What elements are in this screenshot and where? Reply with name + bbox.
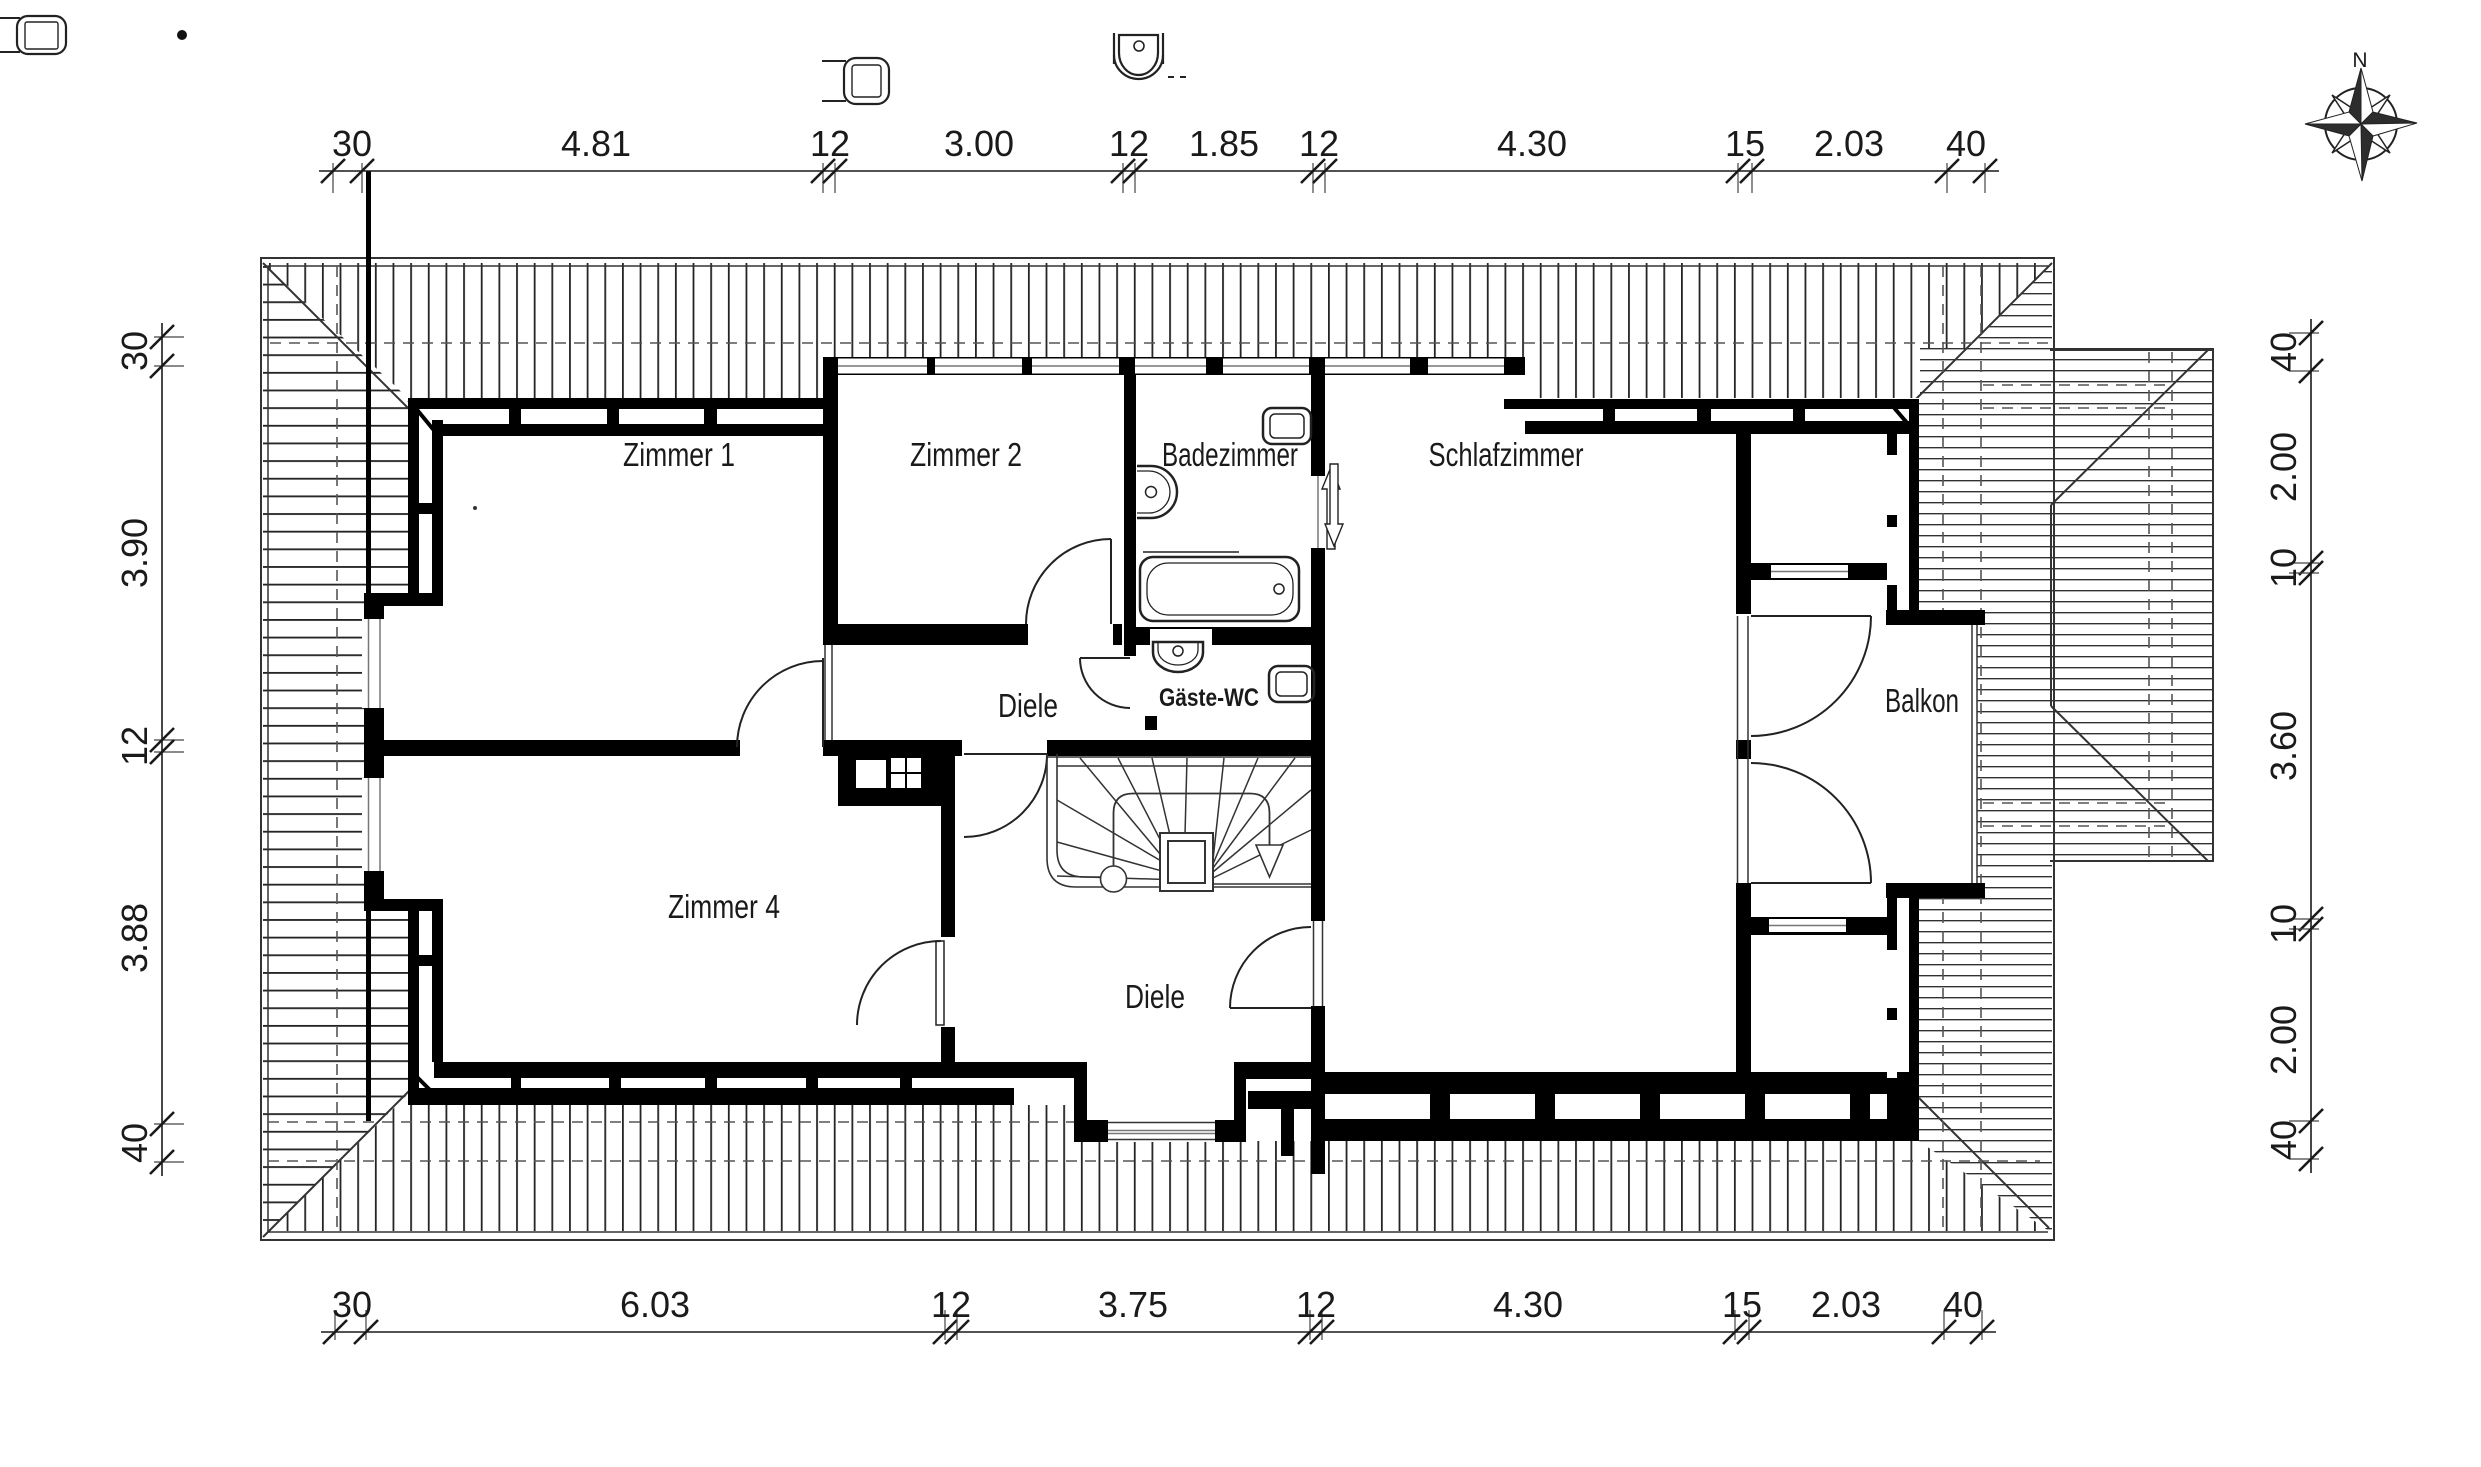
svg-text:12: 12: [1296, 1284, 1336, 1325]
svg-text:12: 12: [1299, 123, 1339, 164]
svg-text:1.85: 1.85: [1189, 123, 1259, 164]
svg-text:40: 40: [2263, 332, 2304, 372]
svg-text:4.30: 4.30: [1497, 123, 1567, 164]
svg-text:2.03: 2.03: [1811, 1284, 1881, 1325]
svg-text:4.81: 4.81: [561, 123, 631, 164]
svg-text:30: 30: [114, 331, 155, 371]
svg-text:2.00: 2.00: [2263, 432, 2304, 502]
svg-text:40: 40: [114, 1123, 155, 1163]
svg-text:30: 30: [332, 123, 372, 164]
svg-text:10: 10: [2263, 904, 2304, 944]
svg-text:3.75: 3.75: [1098, 1284, 1168, 1325]
svg-text:Zimmer 4: Zimmer 4: [668, 888, 780, 925]
svg-text:40: 40: [2263, 1120, 2304, 1160]
svg-text:3.60: 3.60: [2263, 711, 2304, 781]
svg-text:6.03: 6.03: [620, 1284, 690, 1325]
svg-text:12: 12: [1109, 123, 1149, 164]
svg-text:Gäste-WC: Gäste-WC: [1159, 684, 1259, 712]
svg-text:Balkon: Balkon: [1885, 682, 1959, 719]
svg-text:Zimmer 1: Zimmer 1: [623, 436, 735, 473]
svg-text:40: 40: [1946, 123, 1986, 164]
svg-text:2.00: 2.00: [2263, 1005, 2304, 1075]
svg-text:12: 12: [114, 726, 155, 766]
svg-text:Schlafzimmer: Schlafzimmer: [1429, 436, 1584, 473]
svg-text:Diele: Diele: [1125, 978, 1185, 1015]
svg-text:15: 15: [1722, 1284, 1762, 1325]
svg-text:3.90: 3.90: [114, 518, 155, 588]
svg-text:3.88: 3.88: [114, 903, 155, 973]
svg-text:15: 15: [1725, 123, 1765, 164]
svg-text:10: 10: [2263, 548, 2304, 588]
svg-text:40: 40: [1943, 1284, 1983, 1325]
svg-text:3.00: 3.00: [944, 123, 1014, 164]
svg-text:Badezimmer: Badezimmer: [1162, 436, 1298, 473]
svg-text:12: 12: [931, 1284, 971, 1325]
svg-text:4.30: 4.30: [1493, 1284, 1563, 1325]
svg-text:N: N: [2352, 49, 2367, 72]
svg-text:Zimmer 2: Zimmer 2: [910, 436, 1022, 473]
svg-text:2.03: 2.03: [1814, 123, 1884, 164]
svg-text:30: 30: [332, 1284, 372, 1325]
svg-text:12: 12: [810, 123, 850, 164]
svg-text:Diele: Diele: [998, 687, 1058, 724]
